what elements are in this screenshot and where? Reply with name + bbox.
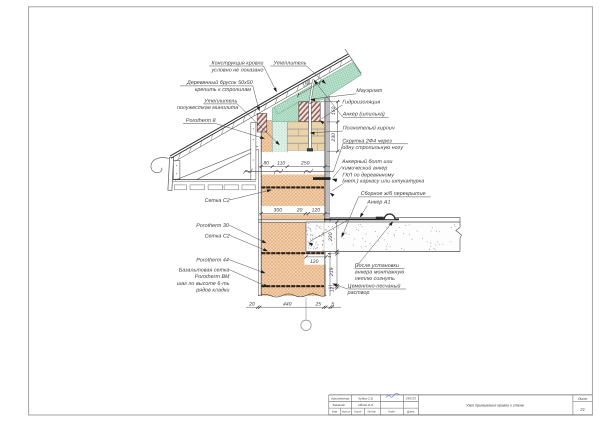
svg-text:Цементно-песчаный: Цементно-песчаный <box>348 283 401 289</box>
svg-text:рядов кладки: рядов кладки <box>195 288 229 294</box>
svg-text:Гидроизоляция: Гидроизоляция <box>342 99 380 105</box>
svg-text:Анкерный болт или: Анкерный болт или <box>341 159 392 165</box>
svg-text:Дата: Дата <box>406 410 415 414</box>
svg-text:Сетка С2: Сетка С2 <box>205 198 230 204</box>
svg-text:(мет.) каркасу или штукатурка: (мет.) каркасу или штукатурка <box>342 178 424 184</box>
svg-text:Porotherm ВМ: Porotherm ВМ <box>195 274 230 280</box>
svg-text:14: 14 <box>327 252 332 258</box>
svg-text:раствор: раствор <box>347 290 370 296</box>
svg-text:Мауэрлат: Мауэрлат <box>356 88 383 94</box>
svg-text:25: 25 <box>314 301 321 307</box>
svg-text:Деревянный брусок 50х50: Деревянный брусок 50х50 <box>186 80 253 86</box>
svg-text:Изм: Изм <box>332 410 337 414</box>
svg-text:20: 20 <box>248 301 255 307</box>
svg-text:Кубив С.В.: Кубив С.В. <box>359 397 374 401</box>
svg-text:80: 80 <box>263 161 269 167</box>
svg-text:Архитектор: Архитектор <box>330 397 349 401</box>
svg-text:Подп.: Подп. <box>388 410 396 414</box>
svg-text:шаг по высоте 6-ть: шаг по высоте 6-ть <box>177 281 230 287</box>
svg-text:Лист: Лист <box>577 397 587 401</box>
svg-text:Porotherm 30: Porotherm 30 <box>196 223 229 229</box>
svg-text:После установки: После установки <box>355 263 399 269</box>
svg-text:условно не показано: условно не показано <box>210 67 263 73</box>
svg-text:120: 120 <box>310 259 319 265</box>
svg-text:240723: 240723 <box>405 397 416 401</box>
svg-text:№ док: № док <box>367 410 376 414</box>
svg-text:Сборное ж/б перекрытие: Сборное ж/б перекрытие <box>361 191 426 197</box>
svg-text:химический анкер: химический анкер <box>341 166 387 172</box>
svg-text:21: 21 <box>579 407 585 412</box>
svg-text:Утеплитель: Утеплитель <box>273 60 306 66</box>
svg-text:Утеплитель: Утеплитель <box>204 98 237 104</box>
svg-text:230: 230 <box>331 133 337 143</box>
svg-text:250: 250 <box>300 161 310 167</box>
svg-text:110: 110 <box>277 161 285 167</box>
svg-text:полужесткая минплита: полужесткая минплита <box>177 105 238 111</box>
svg-text:Полнотелый кирпич: Полнотелый кирпич <box>343 125 395 131</box>
svg-text:Кол.уч: Кол.уч <box>342 410 351 414</box>
svg-text:Анкер (шпилька): Анкер (шпилька) <box>342 112 385 118</box>
svg-text:5: 5 <box>331 301 334 307</box>
svg-text:Porotherm 8: Porotherm 8 <box>186 118 216 124</box>
svg-text:Скрутка 2Ф4 через: Скрутка 2Ф4 через <box>342 138 392 144</box>
svg-text:440: 440 <box>283 301 292 307</box>
svg-text:Базальтовая сетка: Базальтовая сетка <box>179 268 230 274</box>
svg-text:одну стропильную ногу: одну стропильную ногу <box>342 145 403 151</box>
svg-text:Анкер А1: Анкер А1 <box>366 200 390 206</box>
svg-text:Сетка С2: Сетка С2 <box>205 233 230 239</box>
svg-text:20: 20 <box>296 208 303 214</box>
svg-text:крепить к стропилам: крепить к стропилам <box>195 87 251 93</box>
svg-text:Ибоев И.И.: Ибоев И.И. <box>358 403 374 407</box>
svg-text:Porotherm 44: Porotherm 44 <box>196 258 229 264</box>
svg-text:Узел примыкания кровли к стене: Узел примыкания кровли к стене <box>466 403 524 407</box>
svg-text:Конструкция кровли: Конструкция кровли <box>212 60 264 66</box>
svg-text:120: 120 <box>312 208 321 214</box>
svg-text:Заказчик: Заказчик <box>332 403 345 407</box>
svg-text:Лист: Лист <box>353 410 362 414</box>
svg-text:219: 219 <box>329 267 335 277</box>
svg-text:300: 300 <box>274 208 283 214</box>
svg-text:12: 12 <box>330 287 335 293</box>
svg-text:петлю согнуть: петлю согнуть <box>355 276 395 282</box>
svg-text:220: 220 <box>328 232 334 242</box>
svg-text:анкера монтажную: анкера монтажную <box>355 269 404 275</box>
